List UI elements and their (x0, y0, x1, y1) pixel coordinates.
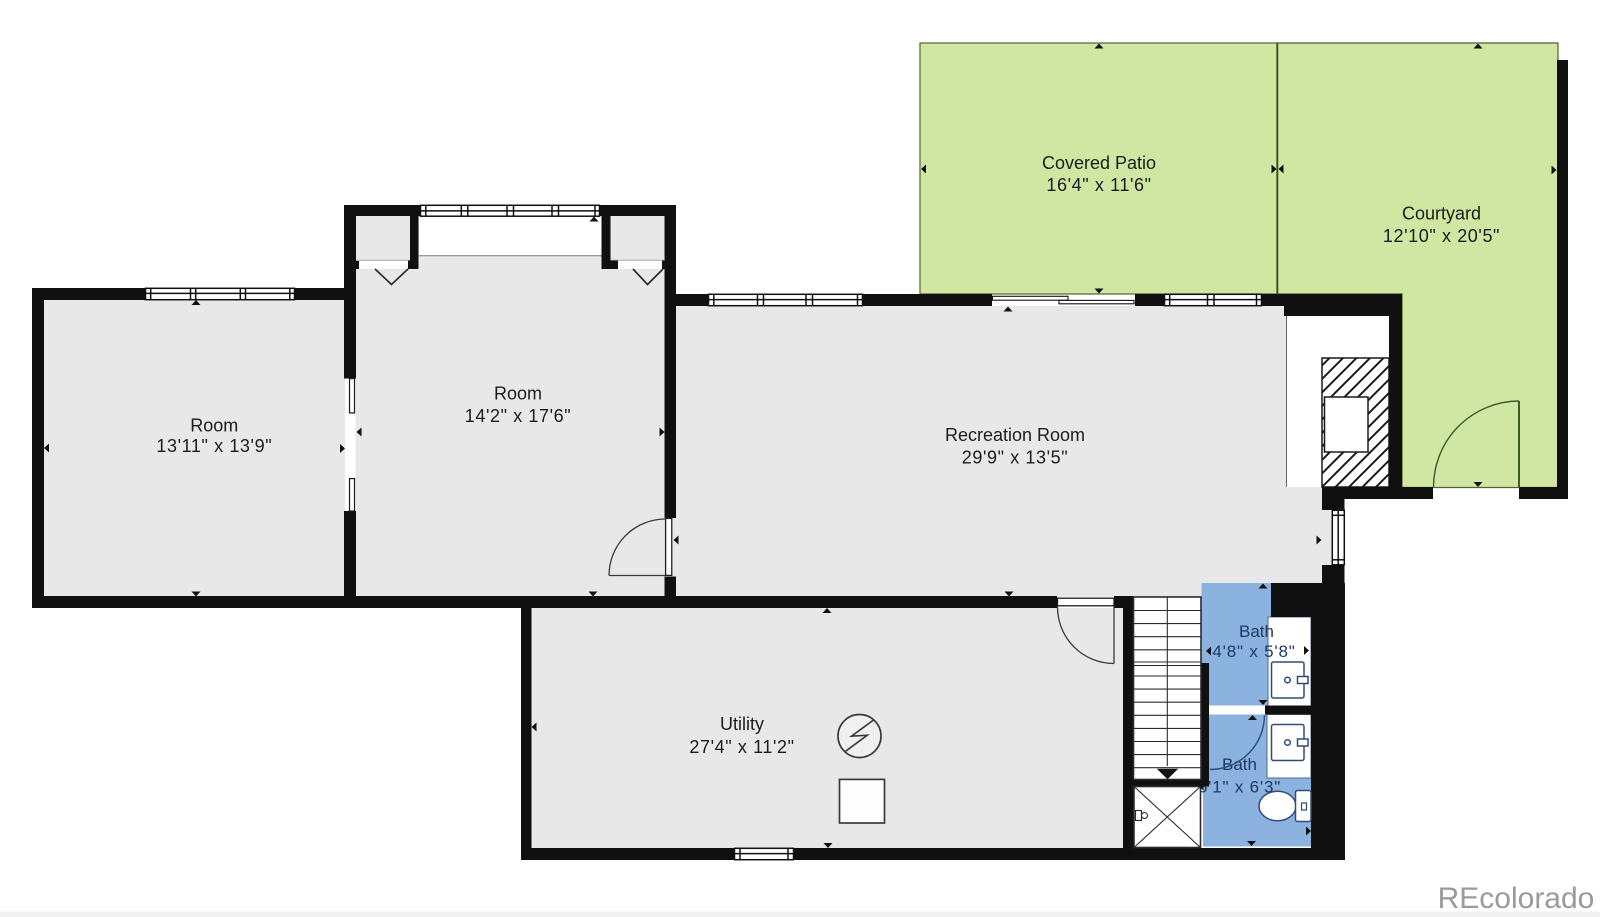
svg-text:16'4" x 11'6": 16'4" x 11'6" (1046, 175, 1151, 195)
svg-text:Bath: Bath (1239, 622, 1274, 641)
svg-text:Recreation Room: Recreation Room (945, 425, 1085, 445)
svg-text:Utility: Utility (720, 714, 764, 734)
svg-text:Bath: Bath (1222, 755, 1257, 774)
svg-text:27'4" x 11'2": 27'4" x 11'2" (689, 737, 794, 757)
svg-text:Room: Room (494, 384, 542, 404)
svg-text:12'10" x 20'5": 12'10" x 20'5" (1383, 226, 1500, 246)
svg-text:4'8" x 5'8": 4'8" x 5'8" (1212, 642, 1295, 661)
svg-text:13'11" x 13'9": 13'11" x 13'9" (156, 436, 272, 456)
svg-text:REcolorado: REcolorado (1438, 882, 1595, 915)
svg-text:Courtyard: Courtyard (1402, 204, 1481, 224)
svg-text:29'9" x 13'5": 29'9" x 13'5" (962, 448, 1069, 468)
svg-text:14'2" x 17'6": 14'2" x 17'6" (465, 406, 572, 426)
svg-text:Covered Patio: Covered Patio (1042, 153, 1156, 173)
svg-text:Room: Room (190, 416, 238, 436)
